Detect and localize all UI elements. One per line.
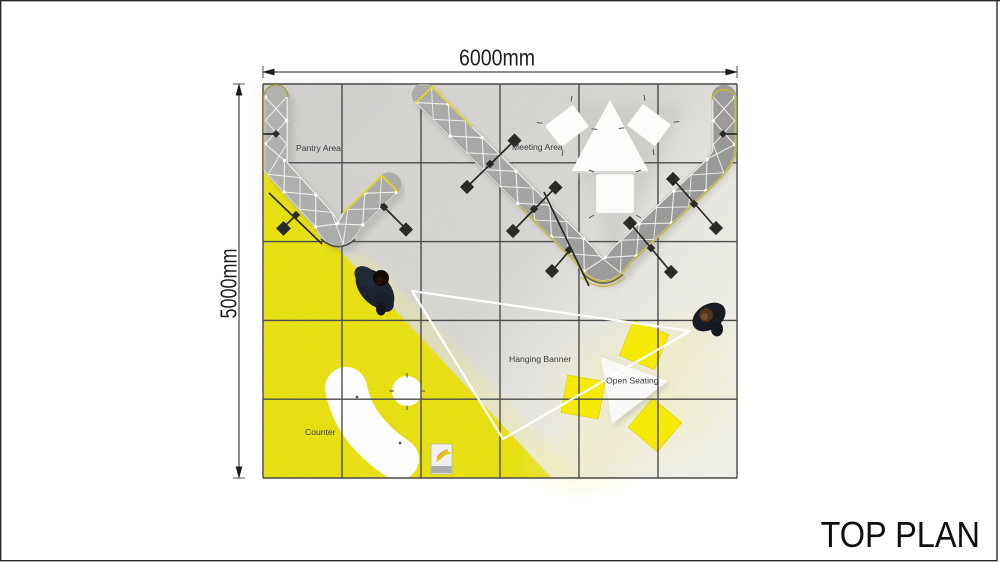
svg-text:Counter: Counter (305, 427, 336, 437)
svg-text:Hanging Banner: Hanging Banner (509, 354, 571, 364)
svg-text:Meeting Area: Meeting Area (512, 142, 563, 152)
svg-text:5000mm: 5000mm (216, 249, 242, 319)
svg-text:TOP PLAN: TOP PLAN (821, 514, 981, 555)
svg-text:Open Seating: Open Seating (606, 376, 659, 386)
svg-text:6000mm: 6000mm (459, 45, 535, 71)
svg-text:Pantry Area: Pantry Area (296, 143, 341, 153)
